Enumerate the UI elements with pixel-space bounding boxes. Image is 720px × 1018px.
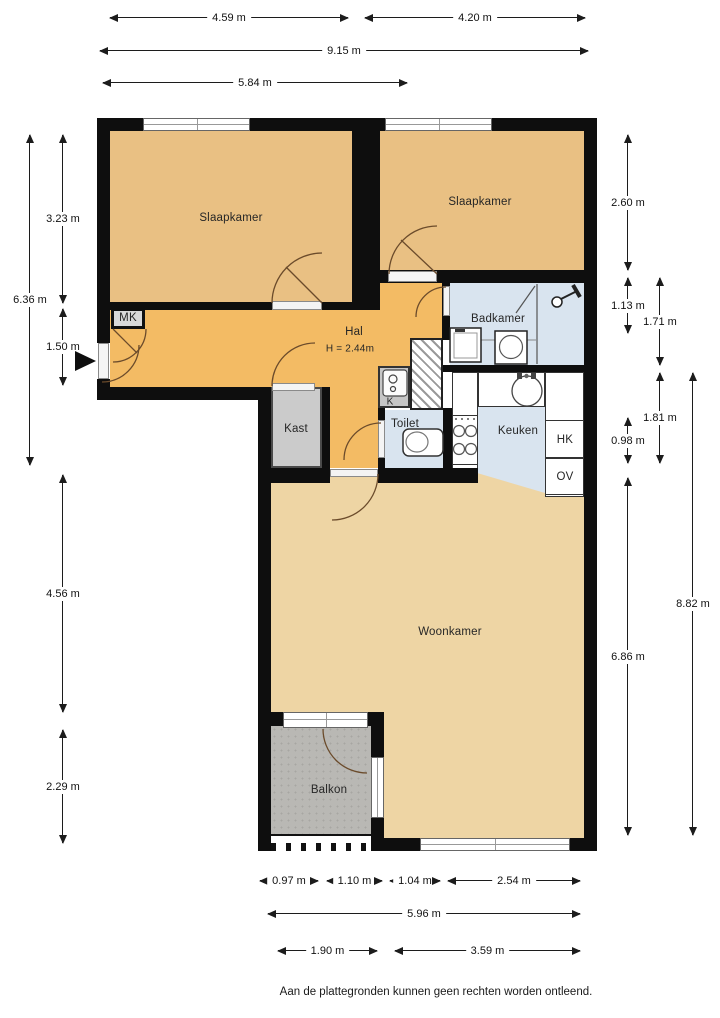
door-badkamer [443,286,450,316]
dim-left-balcony-height: 2.29 m [62,730,63,843]
dim-label: 5.84 m [233,76,277,90]
dim-label: 1.90 m [306,944,350,958]
room-floor-hal-upper [380,283,442,310]
balkon-railing [271,834,371,851]
window-slaapkamer-right [385,118,492,131]
wall-hall-bottom-outer [97,387,271,400]
kitchen-counter-sink [478,372,545,407]
shaft-hatched [410,338,443,410]
dim-label: 3.59 m [466,944,510,958]
dim-right-lower-total: 8.82 m [692,373,693,835]
door-slaapkamer-right [388,271,437,282]
label-balkon: Balkon [311,784,347,796]
label-mk: MK [119,312,137,324]
dim-bottom-balcony-width: 1.90 m [278,950,377,951]
wall-kast-right [322,387,330,470]
wall-balkon-top-left [258,712,283,726]
door-toilet [378,420,385,458]
dim-label: 1.04 m [393,874,437,888]
dim-left-living-height: 4.56 m [62,475,63,712]
dim-right-bathroom-height: 1.71 m [659,278,660,365]
wall-left-upper [97,131,110,343]
dim-top-width-left-bedroom: 4.59 m [110,17,348,18]
wall-toilet-right [443,408,452,470]
dim-bottom-living-width: 3.59 m [395,950,580,951]
door-entrance [98,343,109,379]
door-woonkamer [330,469,378,477]
label-hal-height: H = 2.44m [326,344,374,355]
label-k: K [387,397,394,408]
label-ov: OV [556,471,573,483]
dim-label: 6.36 m [8,293,52,307]
dim-bottom-seg-4: 2.54 m [448,880,580,881]
disclaimer-text: Aan de plattegronden kunnen geen rechten… [136,986,720,998]
dim-bottom-seg-3: 1.04 m [390,880,440,881]
dim-right-shower-height: 1.13 m [627,278,628,333]
dim-label: 5.96 m [402,907,446,921]
dim-label: 1.81 m [638,411,682,425]
dim-top-width-right-bedroom: 4.20 m [365,17,585,18]
stove-box [452,415,478,465]
wall-right [584,131,597,851]
dim-top-partial-width: 5.84 m [103,82,407,83]
room-floor-hal-corridor [330,387,378,468]
dim-label: 2.54 m [492,874,536,888]
label-kast: Kast [284,423,308,435]
wall-left-lower [258,387,271,851]
dim-label: 3.23 m [41,212,85,226]
dim-label: 0.98 m [606,434,650,448]
closet-k-boiler [378,366,410,408]
dim-label: 9.15 m [322,44,366,58]
dim-bottom-total: 5.96 m [268,913,580,914]
dim-label: 4.20 m [453,11,497,25]
label-slaapkamer-right: Slaapkamer [448,196,511,208]
dim-left-bedroom-height: 3.23 m [62,135,63,303]
dim-label: 6.86 m [606,650,650,664]
door-kast [272,383,315,391]
wall-toilet-left-lower [378,458,385,470]
dim-top-total-width: 9.15 m [100,50,588,51]
door-slaapkamer-left [272,301,322,310]
window-woonkamer [420,838,570,851]
dim-right-kitchen-height: 1.81 m [659,373,660,463]
dim-label: 4.59 m [207,11,251,25]
label-hal: Hal [345,326,363,338]
dim-bottom-seg-1: 0.97 m [260,880,318,881]
wall-balkon-right-upper [371,726,384,757]
label-toilet: Toilet [391,418,419,430]
balkon-door-panel [283,712,368,728]
dim-right-living-height: 6.86 m [627,478,628,835]
dim-left-hall-height: 1.50 m [62,309,63,385]
label-woonkamer: Woonkamer [418,626,482,638]
dim-label: 1.13 m [606,299,650,313]
wall-between-bedrooms [352,131,380,310]
dim-left-upper-total: 6.36 m [29,135,30,465]
dim-right-cupboard-height: 0.98 m [627,418,628,463]
entrance-arrow-icon [75,351,96,371]
room-floor-balkon [271,726,371,838]
dim-label: 8.82 m [671,597,715,611]
label-keuken: Keuken [498,425,538,437]
dim-label: 1.71 m [638,315,682,329]
dim-label: 0.97 m [267,874,311,888]
dim-right-bedroom-height: 2.60 m [627,135,628,270]
wall-woonkamer-top-left [271,468,330,483]
dim-label: 1.10 m [333,874,377,888]
label-hk: HK [557,434,573,446]
window-balkon-side [371,757,384,818]
label-badkamer: Badkamer [471,313,525,325]
label-slaapkamer-left: Slaapkamer [199,212,262,224]
floor-plan: 4.59 m 4.20 m 9.15 m 5.84 m 3.23 m 6.36 … [0,0,720,1018]
dim-label: 2.29 m [41,780,85,794]
wall-balkon-top-right [368,712,384,726]
dim-label: 4.56 m [41,587,85,601]
wall-balkon-right-lower [371,818,384,838]
window-slaapkamer-left [143,118,250,131]
wall-badkamer-bottom [443,365,584,372]
dim-label: 2.60 m [606,196,650,210]
dim-bottom-seg-2: 1.10 m [327,880,382,881]
wall-woonkamer-top-mid [378,468,478,483]
